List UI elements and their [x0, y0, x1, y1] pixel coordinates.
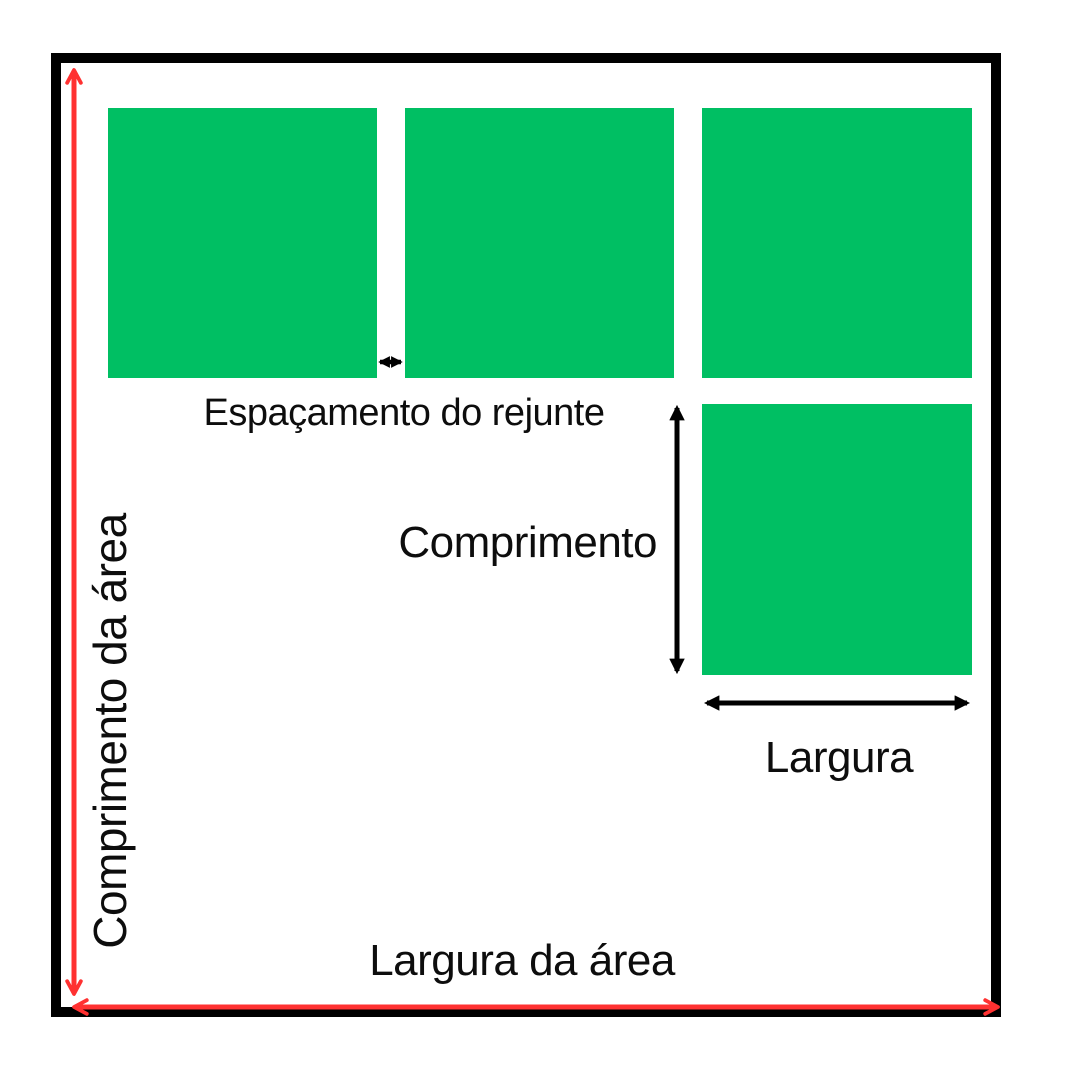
tile-width-label: Largura: [765, 736, 913, 780]
grout-spacing-label: Espaçamento do rejunte: [204, 394, 605, 432]
tile-3: [702, 108, 972, 378]
tile-2: [405, 108, 674, 378]
area-width-label: Largura da área: [369, 939, 675, 983]
area-length-label: Comprimento da área: [87, 513, 133, 948]
tile-length-label: Comprimento: [398, 521, 657, 565]
tiling-diagram-page: Espaçamento do rejunte Comprimento Largu…: [0, 0, 1080, 1080]
tile-4: [702, 404, 972, 675]
tile-1: [108, 108, 377, 378]
